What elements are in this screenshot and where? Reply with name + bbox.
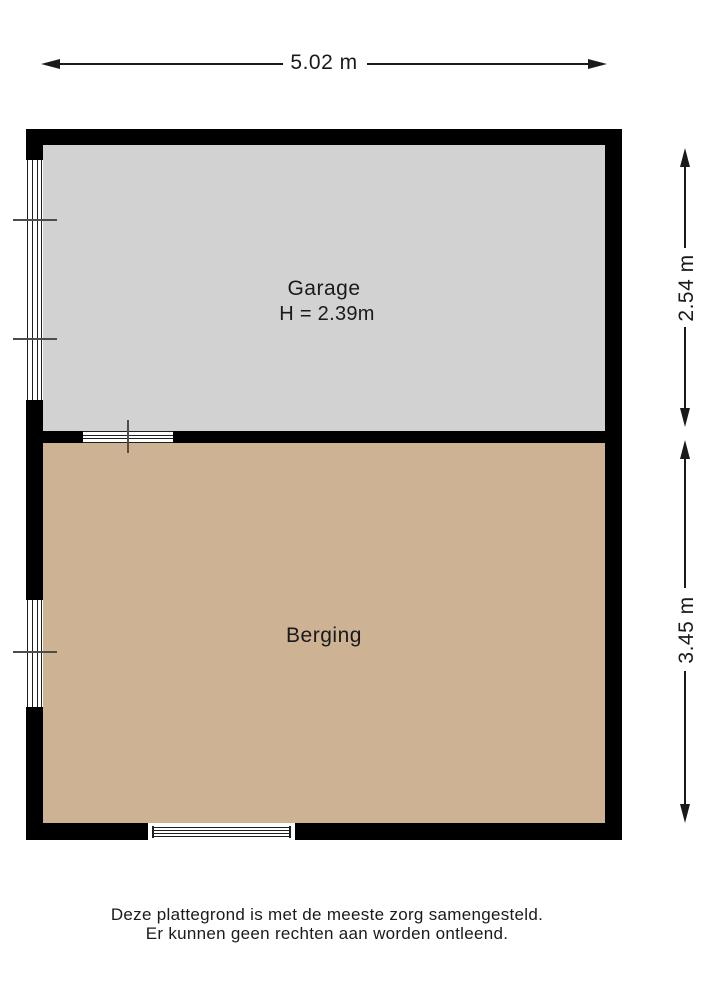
garage-window-tick-2 bbox=[13, 338, 57, 340]
berging-window-tick bbox=[13, 651, 57, 653]
garage-depth-label: 2.54 m bbox=[675, 254, 699, 321]
dimension-width-label: 5.02 m bbox=[290, 51, 357, 75]
dimension-width-line-right bbox=[367, 63, 590, 65]
garage-label: Garage bbox=[287, 277, 360, 301]
dimension-width-line-left bbox=[58, 63, 283, 65]
berging-dim-arrowhead-down-icon bbox=[680, 804, 690, 823]
disclaimer-text: Deze plattegrond is met de meeste zorg s… bbox=[111, 905, 543, 943]
disclaimer-line-2: Er kunnen geen rechten aan worden ontlee… bbox=[111, 924, 543, 943]
garage-window-tick-1 bbox=[13, 219, 57, 221]
berging-bottom-window bbox=[148, 823, 295, 840]
dimension-arrowhead-right-icon bbox=[588, 59, 607, 69]
garage-dim-arrowhead-down-icon bbox=[680, 408, 690, 427]
berging-dim-line-bottom bbox=[684, 671, 686, 804]
berging-left-window bbox=[26, 600, 43, 707]
garage-dim-line-bottom bbox=[684, 327, 686, 410]
berging-label: Berging bbox=[286, 624, 362, 648]
floorplan-canvas: 5.02 m Garage H = 2.39m Bergi bbox=[0, 0, 707, 999]
divider-window-tick bbox=[127, 420, 129, 453]
garage-height-note: H = 2.39m bbox=[279, 303, 375, 326]
berging-depth-label: 3.45 m bbox=[675, 596, 699, 663]
disclaimer-line-1: Deze plattegrond is met de meeste zorg s… bbox=[111, 905, 543, 924]
garage-left-window bbox=[26, 160, 43, 400]
berging-dim-line-top bbox=[684, 457, 686, 588]
garage-dim-line-top bbox=[684, 165, 686, 248]
